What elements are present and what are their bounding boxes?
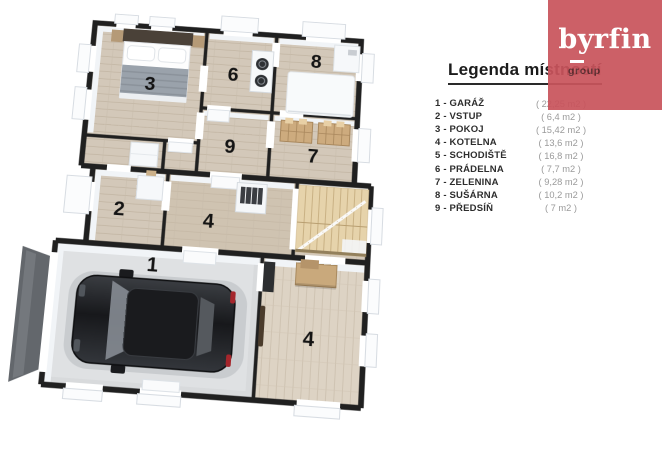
legend-room-area: ( 6,4 m2 ) [519,112,603,122]
legend-room-area: ( 15,42 m2 ) [519,125,603,135]
room-label-9: 9 [224,136,237,158]
legend-room-area: ( 13,6 m2 ) [519,138,603,148]
legend-row: 2 - VSTUP ( 6,4 m2 ) [435,110,631,123]
staircase [295,185,369,257]
room-label-1: 1 [146,254,159,277]
room-label-4: 4 [202,210,215,233]
window-box-room8 [302,22,345,40]
legend-row: 5 - SCHODIŠTĚ ( 16,8 m2 ) [435,149,631,162]
room-label-2: 2 [112,198,125,221]
legend-row: 9 - PŘEDSÍŇ ( 7 m2 ) [435,202,631,215]
legend-room-name: 6 - PRÁDELNA [435,164,519,175]
window-box-room6 [221,16,259,33]
logo-brand-text: byrfin [548,26,662,53]
legend-room-name: 8 - SUŠÁRNA [435,190,519,201]
dark-door-panel [262,261,275,292]
legend-room-name: 3 - POKOJ [435,124,519,135]
legend-row: 6 - PRÁDELNA ( 7,7 m2 ) [435,162,631,175]
car [61,265,249,382]
legend-room-name: 9 - PŘEDSÍŇ [435,203,519,214]
legend-room-name: 5 - SCHODIŠTĚ [435,150,519,161]
legend-room-area: ( 7,7 m2 ) [519,164,603,174]
legend-rows: 1 - GARÁŽ ( 22,25 m2 ) 2 - VSTUP ( 6,4 m… [435,97,631,215]
logo-group-text: group [568,65,662,77]
room-label-3: 3 [144,73,157,95]
legend-room-name: 1 - GARÁŽ [435,98,519,109]
room-label-6: 6 [227,64,240,86]
laundry-basket [235,182,267,213]
legend-room-area: ( 7 m2 ) [519,203,603,213]
legend-row: 3 - POKOJ ( 15,42 m2 ) [435,123,631,136]
room-label-7: 7 [307,145,319,168]
entry-porch [64,175,93,214]
washer-dryer-stack [250,50,274,92]
legend-room-name: 4 - KOTELNA [435,137,519,148]
floor-plan-render: 3 6 8 9 7 2 4 1 4 [0,0,435,446]
room-label-8: 8 [310,51,322,73]
shower-cabinet [129,142,159,167]
room-label-4b: 4 [302,328,315,352]
legend-room-name: 7 - ZELENINA [435,177,519,188]
legend-room-area: ( 16,8 m2 ) [519,151,603,161]
legend-room-area: ( 9,28 m2 ) [519,177,603,187]
legend-row: 4 - KOTELNA ( 13,6 m2 ) [435,136,631,149]
legend-row: 7 - ZELENINA ( 9,28 m2 ) [435,176,631,189]
legend-row: 8 - SUŠÁRNA ( 10,2 m2 ) [435,189,631,202]
logo-dash [570,60,584,63]
legend-room-name: 2 - VSTUP [435,111,519,122]
legend-room-area: ( 10,2 m2 ) [519,190,603,200]
byrfin-logo: byrfin group [548,0,662,110]
